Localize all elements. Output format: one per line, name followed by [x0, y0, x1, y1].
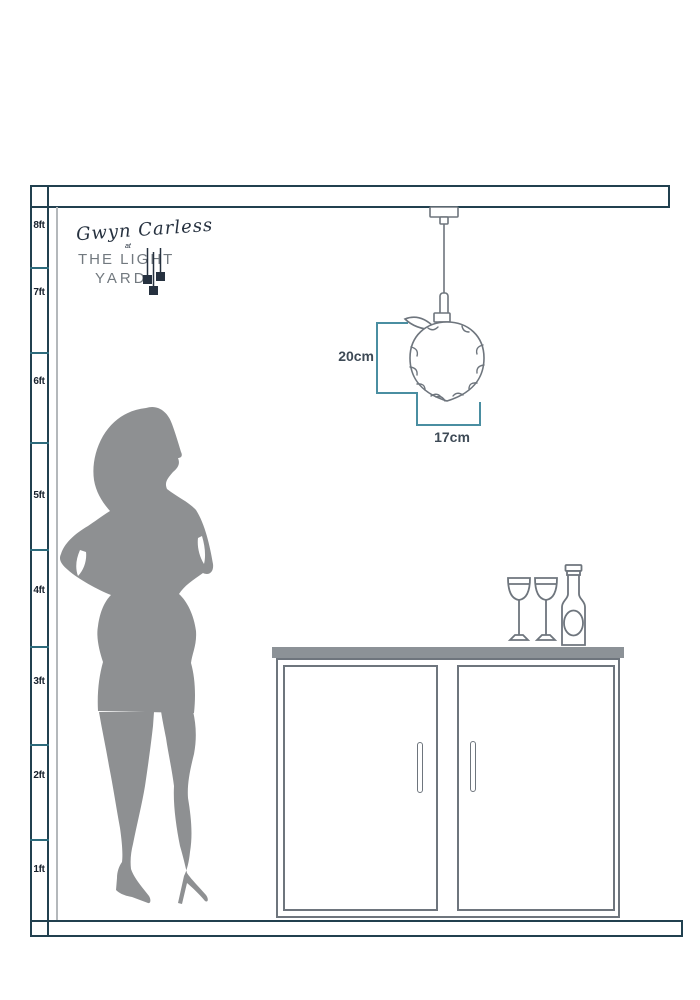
- size-guide-diagram: 8ft 7ft 6ft 5ft 4ft 3ft 2ft 1ft Gwyn Car…: [0, 0, 700, 1000]
- cabinet-handle-left: [417, 742, 423, 793]
- ruler-tick: [30, 549, 49, 551]
- ruler-tick: [30, 352, 49, 354]
- drinks-group: [503, 562, 588, 648]
- ruler-tick: [30, 442, 49, 444]
- cabinet-handle-right: [470, 741, 476, 792]
- cabinet-countertop: [272, 647, 624, 658]
- logo-connector-text: at: [125, 243, 131, 250]
- ruler-label-6ft: 6ft: [29, 376, 49, 388]
- ruler-label-4ft: 4ft: [29, 585, 49, 597]
- woman-silhouette-icon: [58, 404, 230, 920]
- ruler-label-1ft: 1ft: [29, 864, 49, 876]
- ruler-label-3ft: 3ft: [29, 676, 49, 688]
- logo-signature-text: Gwyn Carless: [75, 214, 226, 245]
- width-dimension-label: 17cm: [428, 429, 476, 445]
- ruler-tick: [30, 646, 49, 648]
- ruler-tick: [30, 839, 49, 841]
- wine-glass-icon: [535, 578, 557, 640]
- ruler-label-2ft: 2ft: [29, 770, 49, 782]
- cabinet-door-right: [457, 665, 615, 911]
- ruler-tick: [30, 744, 49, 746]
- cabinet-door-left: [283, 665, 438, 911]
- floor-band: [30, 920, 683, 937]
- pendant-light-icon: [350, 180, 495, 460]
- ruler-label-7ft: 7ft: [29, 287, 49, 299]
- ruler-tick: [30, 267, 49, 269]
- height-dimension-label: 20cm: [330, 348, 374, 364]
- wine-glass-icon: [508, 578, 530, 640]
- ruler-label-5ft: 5ft: [29, 490, 49, 502]
- ruler-label-8ft: 8ft: [29, 220, 49, 232]
- logo-pendant-squares-icon: [137, 247, 167, 299]
- wine-bottle-icon: [562, 565, 585, 645]
